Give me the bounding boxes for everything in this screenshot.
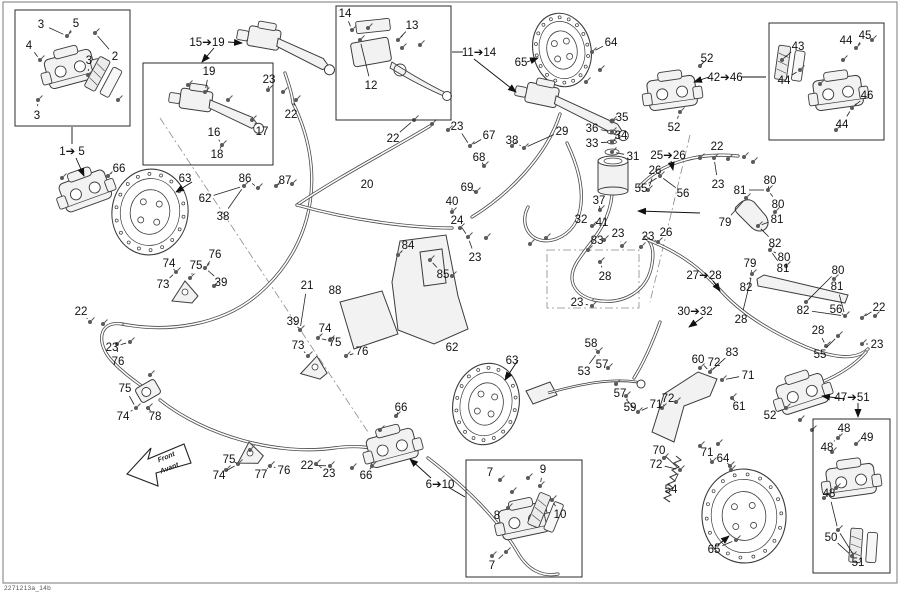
leader-line bbox=[87, 318, 88, 319]
callout-8: 8 bbox=[494, 510, 500, 522]
brake-caliper bbox=[767, 364, 835, 418]
callout-18: 18 bbox=[211, 149, 224, 161]
callout-68: 68 bbox=[473, 152, 486, 164]
fastener bbox=[751, 158, 758, 165]
callout-48: 48 bbox=[821, 442, 834, 454]
callout-66: 66 bbox=[113, 163, 126, 175]
callout-44: 44 bbox=[840, 35, 853, 47]
leader-line bbox=[596, 46, 603, 50]
leader-line bbox=[831, 502, 837, 526]
leader-line bbox=[665, 466, 676, 469]
master-cylinder-lever bbox=[233, 18, 341, 76]
callout-44: 44 bbox=[778, 75, 791, 87]
callout-59: 59 bbox=[624, 402, 637, 414]
callout-34: 34 bbox=[615, 130, 628, 142]
callout-62: 62 bbox=[446, 342, 459, 354]
fastener bbox=[134, 404, 141, 411]
callout-22: 22 bbox=[711, 141, 724, 153]
fastener bbox=[836, 332, 843, 339]
callout-79: 79 bbox=[744, 258, 757, 270]
fastener bbox=[36, 96, 43, 103]
fastener bbox=[88, 318, 95, 325]
callout-39: 39 bbox=[287, 316, 300, 328]
fastener bbox=[306, 352, 313, 359]
callout-81: 81 bbox=[771, 214, 784, 226]
callout-30-32: 30➔32 bbox=[677, 306, 712, 318]
callout-80: 80 bbox=[764, 175, 777, 187]
callout-53: 53 bbox=[578, 366, 591, 378]
callout-81: 81 bbox=[734, 185, 747, 197]
callout-39: 39 bbox=[215, 277, 228, 289]
leader-line bbox=[98, 36, 109, 49]
leader-line bbox=[462, 228, 466, 234]
callout-23: 23 bbox=[612, 228, 625, 240]
callout-62: 62 bbox=[199, 193, 212, 205]
callout-23: 23 bbox=[451, 121, 464, 133]
callout-20: 20 bbox=[361, 179, 374, 191]
callout-6-10: 6➔10 bbox=[426, 479, 455, 491]
fastener bbox=[538, 482, 545, 489]
brake-caliper bbox=[50, 160, 119, 215]
leader-line bbox=[601, 266, 602, 268]
callout-11-14: 11➔14 bbox=[462, 47, 497, 59]
leader-line bbox=[655, 240, 656, 241]
leader-line bbox=[121, 343, 126, 345]
leader-line bbox=[474, 59, 516, 92]
fastener bbox=[598, 66, 605, 73]
callout-71: 71 bbox=[701, 447, 714, 459]
fastener bbox=[38, 56, 45, 63]
callout-52: 52 bbox=[701, 53, 714, 65]
parts-diagram-canvas: 3543231➔ 515➔1919232216171814131211➔1465… bbox=[0, 0, 900, 595]
callout-56: 56 bbox=[677, 188, 690, 200]
callout-50: 50 bbox=[825, 532, 838, 544]
callout-35: 35 bbox=[616, 112, 629, 124]
fastener bbox=[466, 233, 473, 240]
brake-disc bbox=[445, 357, 527, 451]
fastener bbox=[860, 314, 867, 321]
fastener bbox=[400, 44, 407, 51]
callout-23: 23 bbox=[712, 179, 725, 191]
callout-81: 81 bbox=[831, 281, 844, 293]
callout-33: 33 bbox=[586, 138, 599, 150]
callout-83: 83 bbox=[591, 235, 604, 247]
callout-63: 63 bbox=[506, 355, 519, 367]
callout-63: 63 bbox=[179, 173, 192, 185]
callout-13: 13 bbox=[406, 20, 419, 32]
callout-28: 28 bbox=[812, 325, 825, 337]
callout-71: 71 bbox=[650, 399, 663, 411]
callout-82: 82 bbox=[797, 305, 810, 317]
callout-76: 76 bbox=[112, 356, 125, 368]
callout-85: 85 bbox=[437, 269, 450, 281]
fastener bbox=[148, 371, 155, 378]
leader-line bbox=[726, 377, 739, 380]
fastener bbox=[620, 242, 627, 249]
brake-hose bbox=[297, 205, 452, 228]
fastener bbox=[294, 96, 301, 103]
callout-77: 77 bbox=[255, 469, 268, 481]
callout-74: 74 bbox=[163, 258, 176, 270]
callout-21: 21 bbox=[301, 280, 314, 292]
callout-74: 74 bbox=[213, 470, 226, 482]
callout-52: 52 bbox=[764, 410, 777, 422]
callout-81: 81 bbox=[777, 263, 790, 275]
leader-line bbox=[410, 459, 431, 478]
leader-line bbox=[663, 178, 676, 187]
fastener bbox=[526, 474, 533, 481]
brake-hose bbox=[285, 73, 293, 103]
callout-88: 88 bbox=[329, 285, 342, 297]
callout-67: 67 bbox=[483, 130, 496, 142]
master-cylinder-lever bbox=[166, 80, 269, 134]
fastener bbox=[528, 240, 535, 247]
callout-76: 76 bbox=[209, 249, 222, 261]
callout-22: 22 bbox=[387, 133, 400, 145]
leader-line bbox=[826, 339, 835, 348]
fastener bbox=[268, 462, 275, 469]
callout-46: 46 bbox=[861, 90, 874, 102]
hose-bracket bbox=[172, 281, 198, 303]
callout-4: 4 bbox=[26, 40, 33, 52]
callout-28: 28 bbox=[735, 314, 748, 326]
leader-line bbox=[715, 162, 717, 175]
fastener bbox=[93, 29, 100, 36]
callout-55: 55 bbox=[635, 183, 648, 195]
fastener bbox=[730, 394, 737, 401]
callout-72: 72 bbox=[650, 459, 663, 471]
brake-caliper bbox=[358, 419, 426, 470]
leader-line bbox=[319, 466, 321, 468]
callout-48: 48 bbox=[838, 423, 851, 435]
leader-line bbox=[228, 42, 242, 43]
callout-80: 80 bbox=[772, 199, 785, 211]
cover-plate-88 bbox=[340, 291, 398, 349]
fastener bbox=[841, 56, 848, 63]
fastener bbox=[116, 96, 123, 103]
fastener bbox=[344, 352, 351, 359]
leader-line bbox=[834, 441, 835, 442]
leader-line bbox=[170, 275, 173, 278]
callout-14: 14 bbox=[339, 8, 352, 20]
callout-64: 64 bbox=[717, 453, 730, 465]
fastener bbox=[716, 440, 723, 447]
callout-70: 70 bbox=[653, 445, 666, 457]
callout-61: 61 bbox=[733, 401, 746, 413]
front-direction-arrow: FrontAvant bbox=[127, 444, 191, 486]
parts-diagram-page: 3543231➔ 515➔1919232216171814131211➔1465… bbox=[0, 0, 900, 595]
callout-25-26: 25➔26 bbox=[650, 150, 685, 162]
leader-line bbox=[219, 140, 220, 142]
brake-hose bbox=[525, 143, 582, 241]
callout-78: 78 bbox=[149, 411, 162, 423]
fastener bbox=[203, 264, 210, 271]
callout-47-51: 47➔51 bbox=[834, 392, 869, 404]
brake-caliper bbox=[639, 67, 704, 112]
leader-line bbox=[750, 278, 751, 279]
callout-15-19: 15➔19 bbox=[189, 37, 224, 49]
callout-51: 51 bbox=[852, 557, 865, 569]
leader-line bbox=[499, 555, 503, 559]
fastener bbox=[584, 78, 591, 85]
callout-84: 84 bbox=[402, 240, 415, 252]
leader-line bbox=[462, 134, 468, 143]
leader-line bbox=[34, 52, 37, 57]
callout-26: 26 bbox=[649, 165, 662, 177]
leader-line bbox=[666, 456, 678, 467]
fastener bbox=[146, 404, 153, 411]
callout-26: 26 bbox=[660, 227, 673, 239]
callout-45: 45 bbox=[859, 30, 872, 42]
fastener bbox=[550, 496, 557, 503]
callout-48: 48 bbox=[823, 488, 836, 500]
callout-3: 3 bbox=[34, 110, 40, 122]
callout-54: 54 bbox=[665, 484, 678, 496]
callout-72: 72 bbox=[662, 393, 675, 405]
drawing-number-watermark: 2271213a_14b bbox=[4, 585, 51, 592]
callout-23: 23 bbox=[323, 468, 336, 480]
callout-9: 9 bbox=[540, 464, 546, 476]
callout-29: 29 bbox=[556, 126, 569, 138]
leader-line bbox=[677, 116, 678, 119]
fastener bbox=[598, 258, 605, 265]
leader-line bbox=[208, 271, 214, 276]
fastener bbox=[484, 234, 491, 241]
callout-3: 3 bbox=[86, 55, 92, 67]
callout-23: 23 bbox=[469, 252, 482, 264]
fastener bbox=[490, 552, 497, 559]
leader-line bbox=[774, 252, 776, 253]
fastener bbox=[510, 488, 517, 495]
callout-76: 76 bbox=[356, 346, 369, 358]
callout-23: 23 bbox=[263, 74, 276, 86]
callout-75: 75 bbox=[190, 260, 203, 272]
callout-56: 56 bbox=[830, 304, 843, 316]
callout-49: 49 bbox=[861, 432, 874, 444]
callout-41: 41 bbox=[596, 217, 609, 229]
callout-42-46: 42➔46 bbox=[707, 72, 742, 84]
fastener bbox=[256, 184, 263, 191]
callout-38: 38 bbox=[506, 135, 519, 147]
fastener bbox=[350, 26, 357, 33]
callout-74: 74 bbox=[319, 323, 332, 335]
leader-line bbox=[348, 21, 350, 26]
callout-57: 57 bbox=[614, 388, 627, 400]
callout-65: 65 bbox=[515, 57, 528, 69]
callout-22: 22 bbox=[301, 460, 314, 472]
fastener bbox=[65, 32, 72, 39]
leader-line bbox=[847, 111, 850, 116]
leader-line bbox=[49, 28, 63, 35]
leader-line bbox=[350, 354, 354, 355]
callout-38: 38 bbox=[217, 211, 230, 223]
leader-line bbox=[638, 211, 700, 213]
callout-22: 22 bbox=[75, 306, 88, 318]
callout-74: 74 bbox=[117, 411, 130, 423]
callout-22: 22 bbox=[873, 302, 886, 314]
leader-line bbox=[131, 410, 133, 411]
leader-line bbox=[586, 304, 588, 305]
callout-76: 76 bbox=[278, 465, 291, 477]
fastener bbox=[843, 312, 850, 319]
callout-3: 3 bbox=[38, 19, 44, 31]
leader-line bbox=[822, 338, 824, 342]
fastener bbox=[678, 108, 685, 115]
fastener bbox=[854, 440, 861, 447]
leader-line bbox=[713, 281, 720, 291]
callout-5: 5 bbox=[73, 18, 79, 30]
fastener bbox=[418, 41, 425, 48]
fastener bbox=[226, 96, 233, 103]
leader-line bbox=[322, 339, 326, 340]
leader-line bbox=[770, 193, 772, 196]
leader-line bbox=[401, 32, 406, 37]
callout-40: 40 bbox=[446, 196, 459, 208]
detail-box bbox=[143, 63, 273, 165]
callout-36: 36 bbox=[586, 123, 599, 135]
fastener bbox=[468, 142, 475, 149]
callout-43: 43 bbox=[792, 41, 805, 53]
fastener bbox=[639, 243, 646, 250]
callout-60: 60 bbox=[692, 354, 705, 366]
fastener bbox=[798, 416, 805, 423]
callout-19: 19 bbox=[203, 66, 216, 78]
callout-65: 65 bbox=[708, 544, 721, 556]
callout-71: 71 bbox=[742, 370, 755, 382]
callout-83: 83 bbox=[726, 347, 739, 359]
leader-line bbox=[541, 478, 542, 482]
callout-23: 23 bbox=[642, 231, 655, 243]
callout-58: 58 bbox=[585, 338, 598, 350]
callout-17: 17 bbox=[256, 126, 269, 138]
callout-72: 72 bbox=[708, 357, 721, 369]
callout-31: 31 bbox=[627, 151, 640, 163]
callout-64: 64 bbox=[605, 37, 618, 49]
fastener bbox=[504, 548, 511, 555]
brake-hose bbox=[160, 400, 392, 453]
fastener bbox=[636, 408, 643, 415]
fastener bbox=[854, 44, 861, 51]
fastener bbox=[522, 144, 529, 151]
callout-69: 69 bbox=[461, 182, 474, 194]
callout-86: 86 bbox=[239, 173, 252, 185]
fastener bbox=[590, 302, 597, 309]
fastener bbox=[412, 116, 419, 123]
callout-52: 52 bbox=[668, 122, 681, 134]
callout-37: 37 bbox=[593, 195, 606, 207]
callout-80: 80 bbox=[832, 265, 845, 277]
fastener bbox=[188, 274, 195, 281]
callout-1- 5: 1➔ 5 bbox=[59, 146, 85, 158]
fastener bbox=[742, 153, 749, 160]
fastener bbox=[450, 208, 457, 215]
fastener bbox=[266, 86, 273, 93]
callout-75: 75 bbox=[329, 337, 342, 349]
leader-line bbox=[519, 145, 520, 146]
fastener bbox=[106, 172, 113, 179]
brake-hose bbox=[572, 195, 612, 300]
callout-2: 2 bbox=[112, 51, 118, 63]
callout-23: 23 bbox=[106, 342, 119, 354]
callout-87: 87 bbox=[279, 175, 292, 187]
callout-16: 16 bbox=[208, 127, 221, 139]
leader-line bbox=[301, 294, 306, 326]
fastener bbox=[860, 340, 867, 347]
leader-line bbox=[202, 48, 214, 62]
callout-82: 82 bbox=[769, 238, 782, 250]
fastener bbox=[474, 188, 481, 195]
callout-44: 44 bbox=[836, 119, 849, 131]
fastener bbox=[128, 338, 135, 345]
leader-line bbox=[228, 189, 242, 208]
callout-82: 82 bbox=[740, 282, 753, 294]
callout-28: 28 bbox=[599, 271, 612, 283]
callout-75: 75 bbox=[223, 454, 236, 466]
callout-66: 66 bbox=[360, 470, 373, 482]
callout-73: 73 bbox=[292, 340, 305, 352]
brake-hose bbox=[297, 126, 430, 205]
callout-7: 7 bbox=[487, 467, 493, 479]
fastener bbox=[498, 476, 505, 483]
fastener bbox=[350, 464, 357, 471]
hose-bracket bbox=[300, 354, 329, 380]
callout-12: 12 bbox=[365, 80, 378, 92]
callout-24: 24 bbox=[451, 215, 464, 227]
callout-32: 32 bbox=[575, 214, 588, 226]
callout-22: 22 bbox=[285, 109, 298, 121]
callout-75: 75 bbox=[119, 383, 132, 395]
callout-73: 73 bbox=[157, 279, 170, 291]
callout-27-28: 27➔28 bbox=[686, 270, 721, 282]
leader-line bbox=[192, 273, 193, 274]
callout-23: 23 bbox=[571, 297, 584, 309]
fastener bbox=[720, 376, 727, 383]
leader-line bbox=[400, 123, 411, 133]
callout-79: 79 bbox=[719, 217, 732, 229]
callout-55: 55 bbox=[814, 349, 827, 361]
leader-line bbox=[214, 187, 241, 195]
fastener bbox=[281, 88, 288, 95]
callout-57: 57 bbox=[596, 359, 609, 371]
leader-line bbox=[129, 396, 134, 405]
callout-7: 7 bbox=[489, 560, 495, 572]
brake-hose bbox=[634, 322, 660, 378]
fastener bbox=[314, 460, 321, 467]
callout-10: 10 bbox=[554, 509, 567, 521]
callout-23: 23 bbox=[871, 339, 884, 351]
leader-line bbox=[252, 183, 255, 185]
fastener bbox=[60, 174, 67, 181]
callout-66: 66 bbox=[395, 402, 408, 414]
leader-line bbox=[469, 241, 472, 249]
leader-line bbox=[689, 317, 703, 327]
